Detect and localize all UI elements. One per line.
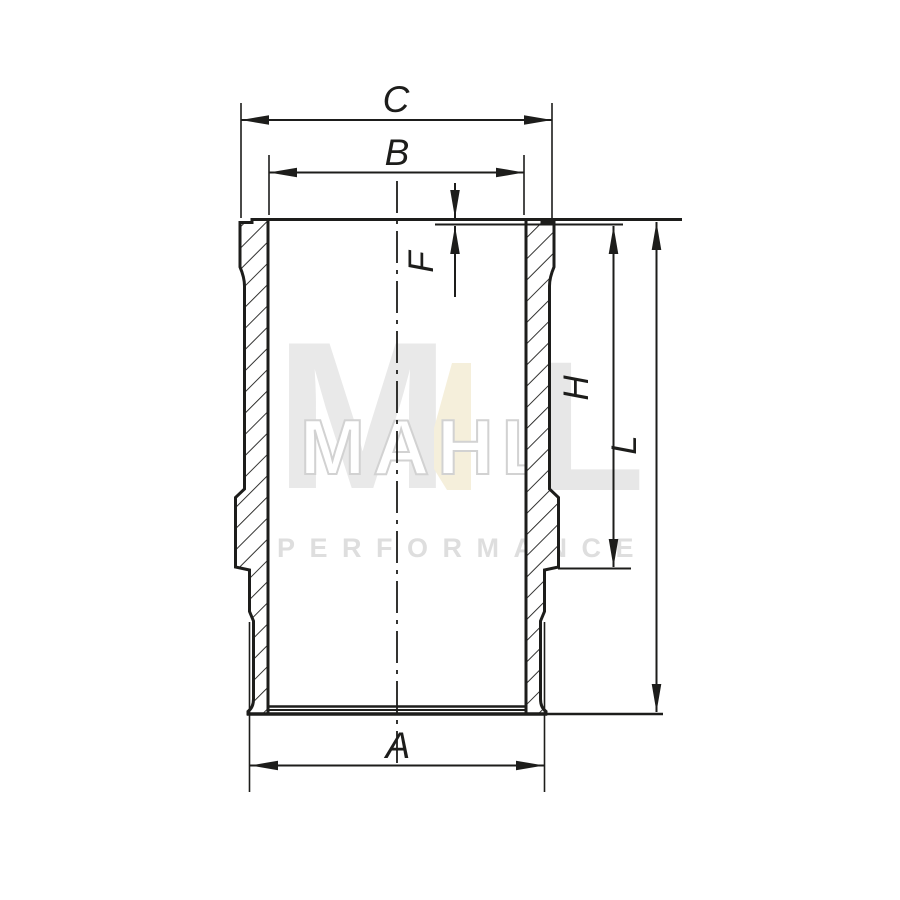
dimension-label-c: C — [383, 79, 410, 120]
mahle-watermark: M MAHL L PERFORMANCE — [275, 298, 648, 563]
dimension-label-h: H — [557, 375, 596, 401]
liner-left-wall — [236, 220, 269, 715]
watermark-outline-letters: MAHL — [300, 403, 557, 491]
dimension-label-f: F — [402, 249, 441, 273]
dimension-label-b: B — [385, 132, 410, 173]
watermark-tagline: PERFORMANCE — [277, 533, 648, 563]
dimension-label-a: A — [384, 725, 411, 766]
dimension-label-l: L — [605, 435, 644, 454]
cylinder-liner-drawing: M MAHL L PERFORMANCE C B — [0, 0, 900, 900]
technical-drawing-page: M MAHL L PERFORMANCE C B — [0, 0, 900, 900]
